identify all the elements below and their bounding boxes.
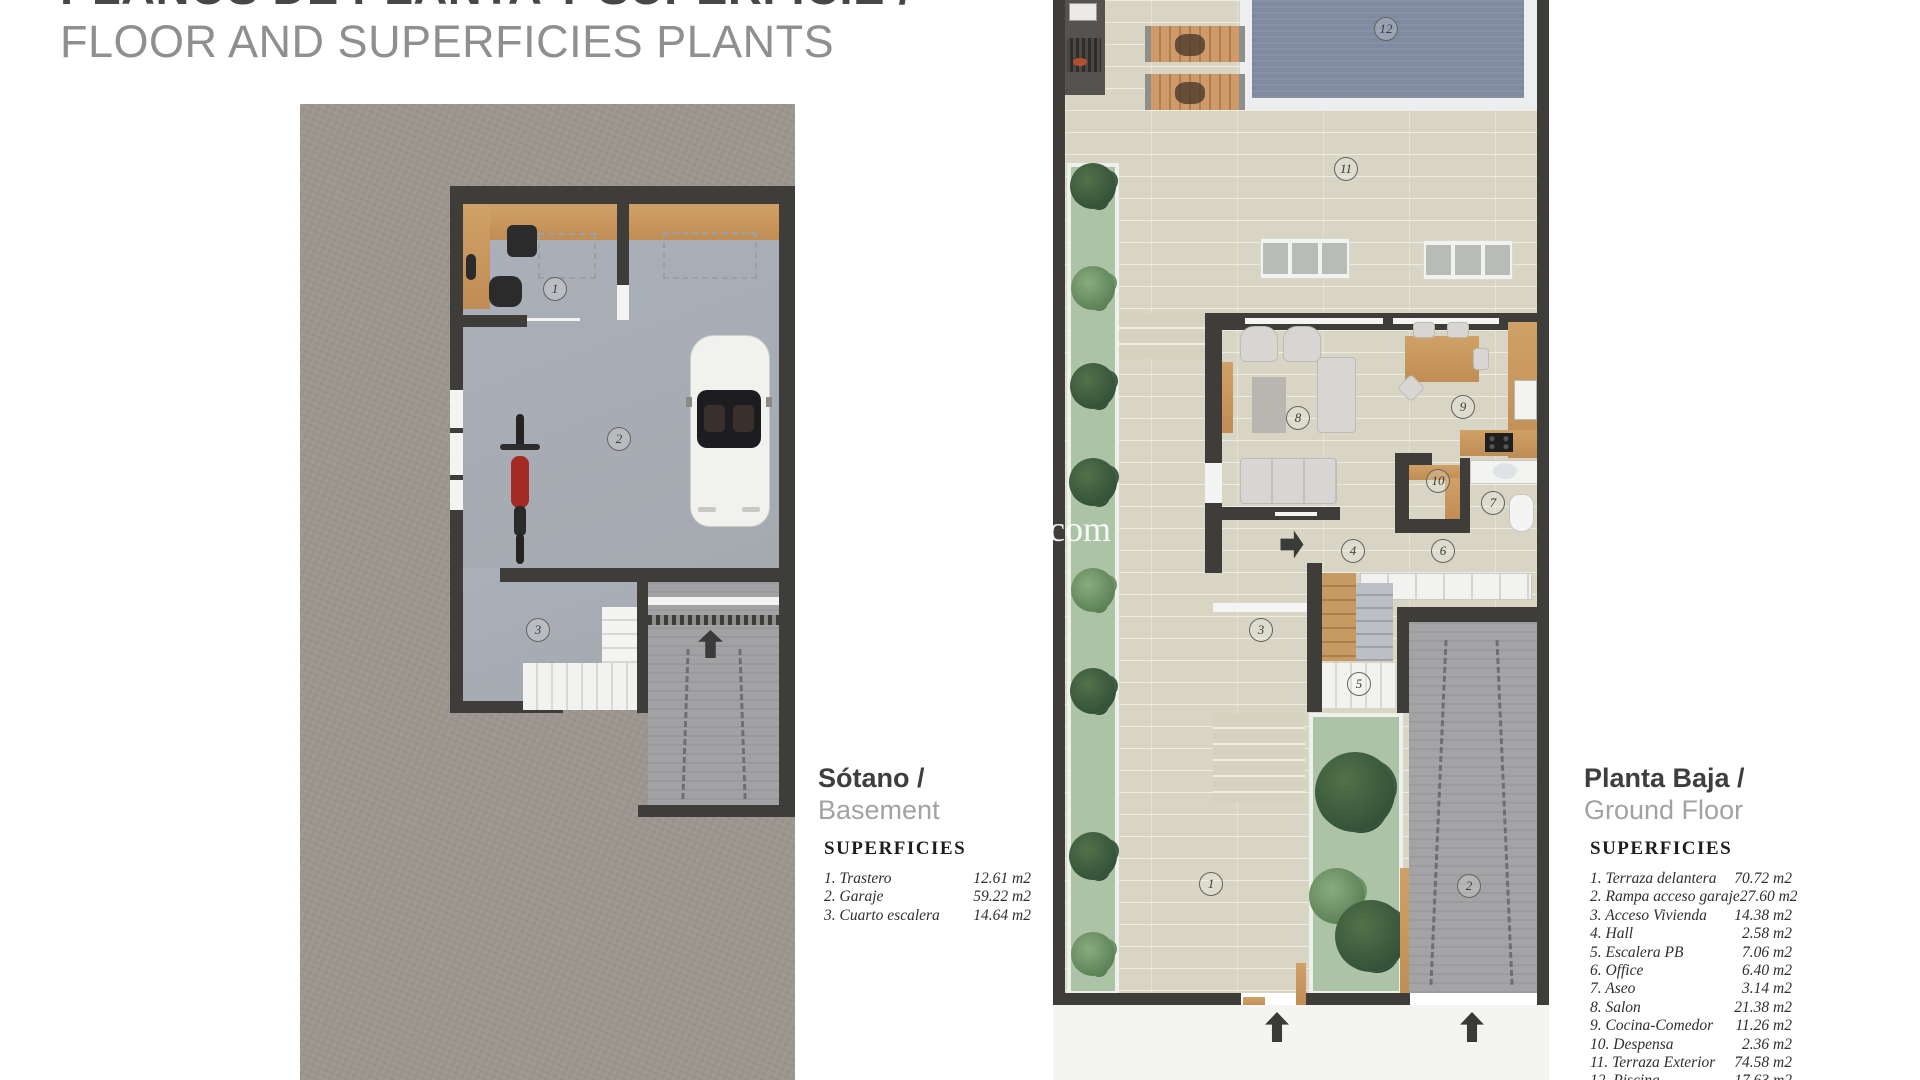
room-label: 3. Acceso Vivienda [1590, 907, 1707, 925]
printer [466, 254, 476, 280]
room-area: 59.22 m2 [973, 888, 1031, 906]
stairs-gray-flight [1356, 583, 1393, 661]
car-seat [704, 405, 725, 432]
basement-title-spanish: Sótano / [818, 762, 940, 794]
outdoor-sink [1069, 3, 1097, 21]
legend-row: 1. Trastero12.61 m2 [824, 870, 1031, 888]
desk-chair [489, 276, 522, 307]
washbasin [1493, 463, 1517, 479]
window-pane [1263, 243, 1288, 274]
legend-row: 12. Piscina17.63 m2 [1590, 1072, 1792, 1080]
room-area: 6.40 m2 [1742, 962, 1792, 980]
car-mirror [766, 397, 772, 407]
trastero-door [617, 285, 629, 320]
toilet [1509, 494, 1534, 532]
car [690, 335, 768, 525]
door-leaf [527, 318, 580, 321]
ramp-left-wall [1397, 607, 1409, 713]
room-marker: 1 [1199, 872, 1223, 896]
room-label: 5. Escalera PB [1590, 944, 1683, 962]
sliding-glass-door [1245, 318, 1383, 324]
window-pane [1485, 245, 1510, 275]
ground-legend-title: SUPERFICIES [1590, 838, 1732, 860]
basement-legend: 1. Trastero12.61 m2 2. Garaje59.22 m2 3.… [824, 870, 1031, 925]
sun-lounger [1145, 74, 1245, 110]
stair-left-wall [1307, 563, 1322, 712]
tree-icon [1071, 266, 1115, 310]
ramp-top-wall [1397, 607, 1537, 622]
room-marker: 11 [1334, 157, 1358, 181]
room-marker: 2 [1457, 874, 1481, 898]
room-area: 7.06 m2 [1742, 944, 1792, 962]
room-area: 2.58 m2 [1742, 925, 1792, 943]
towel [1175, 34, 1205, 56]
page-title-english: FLOOR AND SUPERFICIES PLANTS [60, 16, 834, 68]
legend-row: 8. Salon21.38 m2 [1590, 999, 1792, 1017]
aseo-divider-wall [1460, 458, 1470, 533]
corner-sofa [1317, 357, 1356, 433]
tree-icon [1335, 900, 1407, 972]
room-label: 2. Garaje [824, 888, 883, 906]
room-label: 3. Cuarto escalera [824, 907, 940, 925]
room-area: 21.38 m2 [1734, 999, 1792, 1017]
room-area: 11.26 m2 [1735, 1017, 1792, 1035]
despensa-bottom-wall [1395, 519, 1467, 533]
basement-right-wall [779, 186, 795, 817]
car-headlight [742, 507, 760, 512]
room-marker: 7 [1481, 491, 1505, 515]
tree-icon [1315, 752, 1395, 832]
motorcycle-seat [514, 506, 526, 536]
room-area: 2.36 m2 [1742, 1036, 1792, 1054]
drainage-grate [648, 615, 779, 625]
motorcycle [492, 414, 548, 564]
room-label: 6. Office [1590, 962, 1643, 980]
page-title-spanish: PLANOS DE PLANTA Y SUPERFICIE / [60, 0, 912, 15]
room-number: 10 [1432, 473, 1445, 489]
room-number: 9 [1460, 399, 1467, 415]
kitchen-sink [1514, 380, 1537, 420]
room-area: 27.60 m2 [1740, 888, 1798, 906]
room-number: 5 [1356, 676, 1363, 692]
armchair [1283, 326, 1321, 362]
rug [1252, 377, 1286, 433]
bbq-ember [1073, 58, 1087, 66]
room-number: 2 [616, 431, 623, 447]
window-pane [1455, 245, 1480, 275]
floor-plan-sheet: PLANOS DE PLANTA Y SUPERFICIE / FLOOR AN… [0, 0, 1920, 1080]
room-area: 70.72 m2 [1734, 870, 1792, 888]
room-marker: 6 [1431, 539, 1455, 563]
motorcycle-handlebar [500, 444, 540, 450]
room-area: 14.64 m2 [973, 907, 1031, 925]
room-marker: 5 [1347, 672, 1371, 696]
car-headlight [698, 507, 716, 512]
room-label: 12. Piscina [1590, 1072, 1660, 1080]
legend-row: 1. Terraza delantera70.72 m2 [1590, 870, 1792, 888]
hall-door-leaf [1275, 512, 1317, 516]
left-wall-door [450, 480, 463, 510]
office-chair [507, 225, 537, 257]
window-pane [1322, 243, 1347, 274]
room-label: 2. Rampa acceso garaje [1590, 888, 1740, 906]
window-pane [1292, 243, 1317, 274]
legend-row: 6. Office6.40 m2 [1590, 962, 1792, 980]
ground-title-english: Ground Floor [1584, 794, 1745, 826]
room-area: 3.14 m2 [1742, 980, 1792, 998]
room-label: 1. Trastero [824, 870, 891, 888]
tree-icon [1070, 163, 1116, 209]
motorcycle-rear-wheel [516, 534, 524, 564]
room-label: 4. Hall [1590, 925, 1633, 943]
stairs-wood-flight [1322, 573, 1356, 661]
basement-plan-title: Sótano / Basement [818, 762, 940, 827]
tree-icon [1070, 363, 1116, 409]
room-marker: 3 [526, 618, 550, 642]
sideboard [1222, 362, 1233, 433]
swimming-pool [1252, 0, 1524, 98]
basement-title-english: Basement [818, 794, 940, 826]
legend-row: 11. Terraza Exterior74.58 m2 [1590, 1054, 1792, 1072]
dining-chair [1413, 322, 1435, 338]
ground-plan-title: Planta Baja / Ground Floor [1584, 762, 1745, 827]
basement-plan: 1 2 3 [300, 104, 795, 1080]
tree-icon [1069, 832, 1117, 880]
legend-row: 5. Escalera PB7.06 m2 [1590, 944, 1792, 962]
outer-left-wall [1053, 0, 1065, 1005]
armchair [1240, 326, 1278, 362]
tree-icon [1070, 668, 1116, 714]
wood-fence [1400, 868, 1409, 998]
left-wall-door [450, 390, 463, 428]
room-area: 12.61 m2 [973, 870, 1031, 888]
ground-title-spanish: Planta Baja / [1584, 762, 1745, 794]
car-mirror [686, 397, 692, 407]
legend-row: 3. Acceso Vivienda14.38 m2 [1590, 907, 1792, 925]
window-3pane [1260, 238, 1350, 279]
entrance-glass-door [1213, 603, 1307, 612]
basement-legend-title: SUPERFICIES [824, 838, 966, 860]
outer-right-wall [1537, 0, 1549, 1005]
outdoor-kitchen [1065, 0, 1105, 95]
room-marker: 4 [1341, 539, 1365, 563]
room-number: 1 [552, 281, 559, 297]
room-marker: 3 [1249, 618, 1273, 642]
room-label: 8. Salon [1590, 999, 1641, 1017]
legend-row: 2. Garaje59.22 m2 [824, 888, 1031, 906]
motorcycle-tank [511, 456, 529, 508]
stair-room-right-wall [637, 582, 648, 713]
dining-chair [1447, 322, 1469, 338]
ground-legend: 1. Terraza delantera70.72 m2 2. Rampa ac… [1590, 870, 1792, 1080]
stairs-lower-flight [523, 663, 637, 710]
driveway-bottom-wall [638, 805, 795, 817]
room-number: 6 [1440, 543, 1447, 559]
legend-row: 4. Hall2.58 m2 [1590, 925, 1792, 943]
towel [1175, 82, 1205, 104]
room-marker: 8 [1286, 406, 1310, 430]
room-marker: 12 [1374, 17, 1398, 41]
room-label: 1. Terraza delantera [1590, 870, 1716, 888]
legend-row: 7. Aseo3.14 m2 [1590, 980, 1792, 998]
room-number: 4 [1350, 543, 1357, 559]
dining-table [1405, 336, 1479, 382]
wood-post [1296, 963, 1306, 1005]
trastero-bottom-wall [450, 315, 527, 327]
salon-door [1205, 463, 1222, 503]
ground-floor-plan: com 1 2 3 4 5 6 7 8 9 10 11 12 [1053, 0, 1549, 1080]
legend-row: 9. Cocina-Comedor11.26 m2 [1590, 1017, 1792, 1035]
hob [1485, 433, 1513, 452]
sliding-glass-door [1393, 318, 1499, 324]
tree-icon [1071, 932, 1115, 976]
room-marker: 10 [1426, 469, 1450, 493]
garage-bottom-wall [500, 568, 782, 582]
tree-icon [1069, 458, 1117, 506]
room-label: 9. Cocina-Comedor [1590, 1017, 1713, 1035]
shelving-outline [538, 233, 596, 279]
entrance-steps [1213, 713, 1305, 803]
room-number: 7 [1490, 495, 1497, 511]
room-marker: 1 [543, 277, 567, 301]
window-3pane [1423, 240, 1513, 280]
room-number: 3 [535, 622, 542, 638]
room-area: 14.38 m2 [1734, 907, 1792, 925]
room-marker: 2 [607, 427, 631, 451]
garage-ramp [1409, 622, 1537, 993]
dining-chair [1473, 348, 1489, 370]
sofa [1240, 458, 1337, 504]
room-marker: 9 [1451, 395, 1475, 419]
car-seat [733, 405, 754, 432]
room-number: 1 [1208, 876, 1215, 892]
window-pane [1426, 245, 1451, 275]
room-label: 10. Despensa [1590, 1036, 1674, 1054]
salon-left-wall [1205, 313, 1222, 463]
room-number: 3 [1258, 622, 1265, 638]
tree-icon [1071, 568, 1115, 612]
room-label: 7. Aseo [1590, 980, 1635, 998]
garage-door-line [648, 597, 779, 605]
room-number: 2 [1466, 878, 1473, 894]
shelving-outline [663, 232, 757, 279]
motorcycle-front-wheel [516, 414, 524, 448]
bbq-grill [1067, 38, 1101, 72]
room-label: 11. Terraza Exterior [1590, 1054, 1715, 1072]
room-number: 8 [1295, 410, 1302, 426]
sun-lounger [1145, 26, 1245, 62]
room-number: 12 [1380, 21, 1393, 37]
legend-row: 2. Rampa acceso garaje27.60 m2 [1590, 888, 1792, 906]
room-number: 11 [1340, 161, 1352, 177]
legend-row: 3. Cuarto escalera14.64 m2 [824, 907, 1031, 925]
watermark: com [1049, 508, 1111, 550]
terrace-steps [1119, 313, 1205, 359]
legend-row: 10. Despensa2.36 m2 [1590, 1036, 1792, 1054]
left-wall-door [450, 433, 463, 475]
room-area: 74.58 m2 [1734, 1054, 1792, 1072]
room-area: 17.63 m2 [1734, 1072, 1792, 1080]
